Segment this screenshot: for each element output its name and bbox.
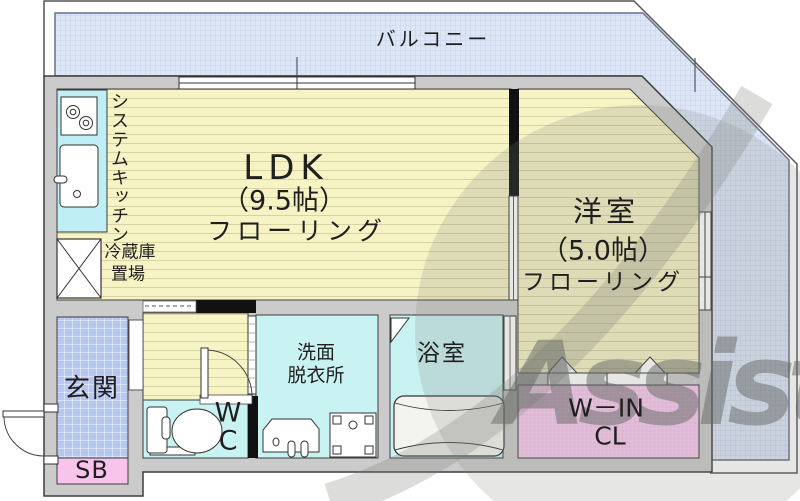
- washing-machine-icon: [330, 413, 376, 457]
- window-ldk-top: [179, 77, 415, 89]
- wall-black-hall-top: [196, 300, 256, 313]
- closet-label-line1: W－IN: [568, 396, 644, 421]
- balcony-label: バルコニー: [376, 29, 491, 49]
- vanity-sink-icon: [263, 419, 319, 457]
- fridge-label-line1: 冷蔵庫: [105, 245, 156, 262]
- toilet-icon: [147, 407, 222, 455]
- shoebox-label: SB: [75, 458, 109, 482]
- sliding-door-hall-washroom: [248, 316, 256, 394]
- kitchen-label: システムキッチン: [109, 92, 127, 262]
- western-room-flooring-label: フローリング: [522, 272, 684, 295]
- opening-entrance-hall: [129, 320, 143, 390]
- ldk-size-label: （9.5帖）: [222, 188, 346, 215]
- fridge-space-icon: [57, 239, 101, 298]
- washroom-label-line1: 洗面: [297, 344, 335, 363]
- wall-black-wc-washroom: [248, 396, 258, 458]
- ldk-flooring-label: フローリング: [207, 219, 387, 244]
- kitchen-sink-icon: [54, 145, 98, 207]
- western-room-size-label: （5.0帖）: [541, 238, 665, 265]
- hallway: [143, 313, 248, 400]
- wc-label-line2: C: [219, 428, 238, 455]
- stove-icon: [61, 97, 97, 135]
- ldk-label: LDK: [243, 151, 328, 185]
- opening-ldk-hall: [143, 301, 196, 312]
- wc-label-line1: W: [215, 400, 242, 427]
- western-room-label: 洋室: [573, 198, 639, 227]
- closet-label-line2: CL: [594, 424, 625, 449]
- entrance-label: 玄関: [64, 376, 120, 402]
- fridge-label-line2: 置場: [111, 267, 145, 284]
- floor-plan: Assist バルコニー LDK （9.5帖） フローリング システムキッチン …: [0, 0, 800, 501]
- washroom-label-line2: 脱衣所: [287, 367, 344, 386]
- watermark-text: Assist: [498, 318, 800, 452]
- bath-label: 浴室: [417, 343, 467, 366]
